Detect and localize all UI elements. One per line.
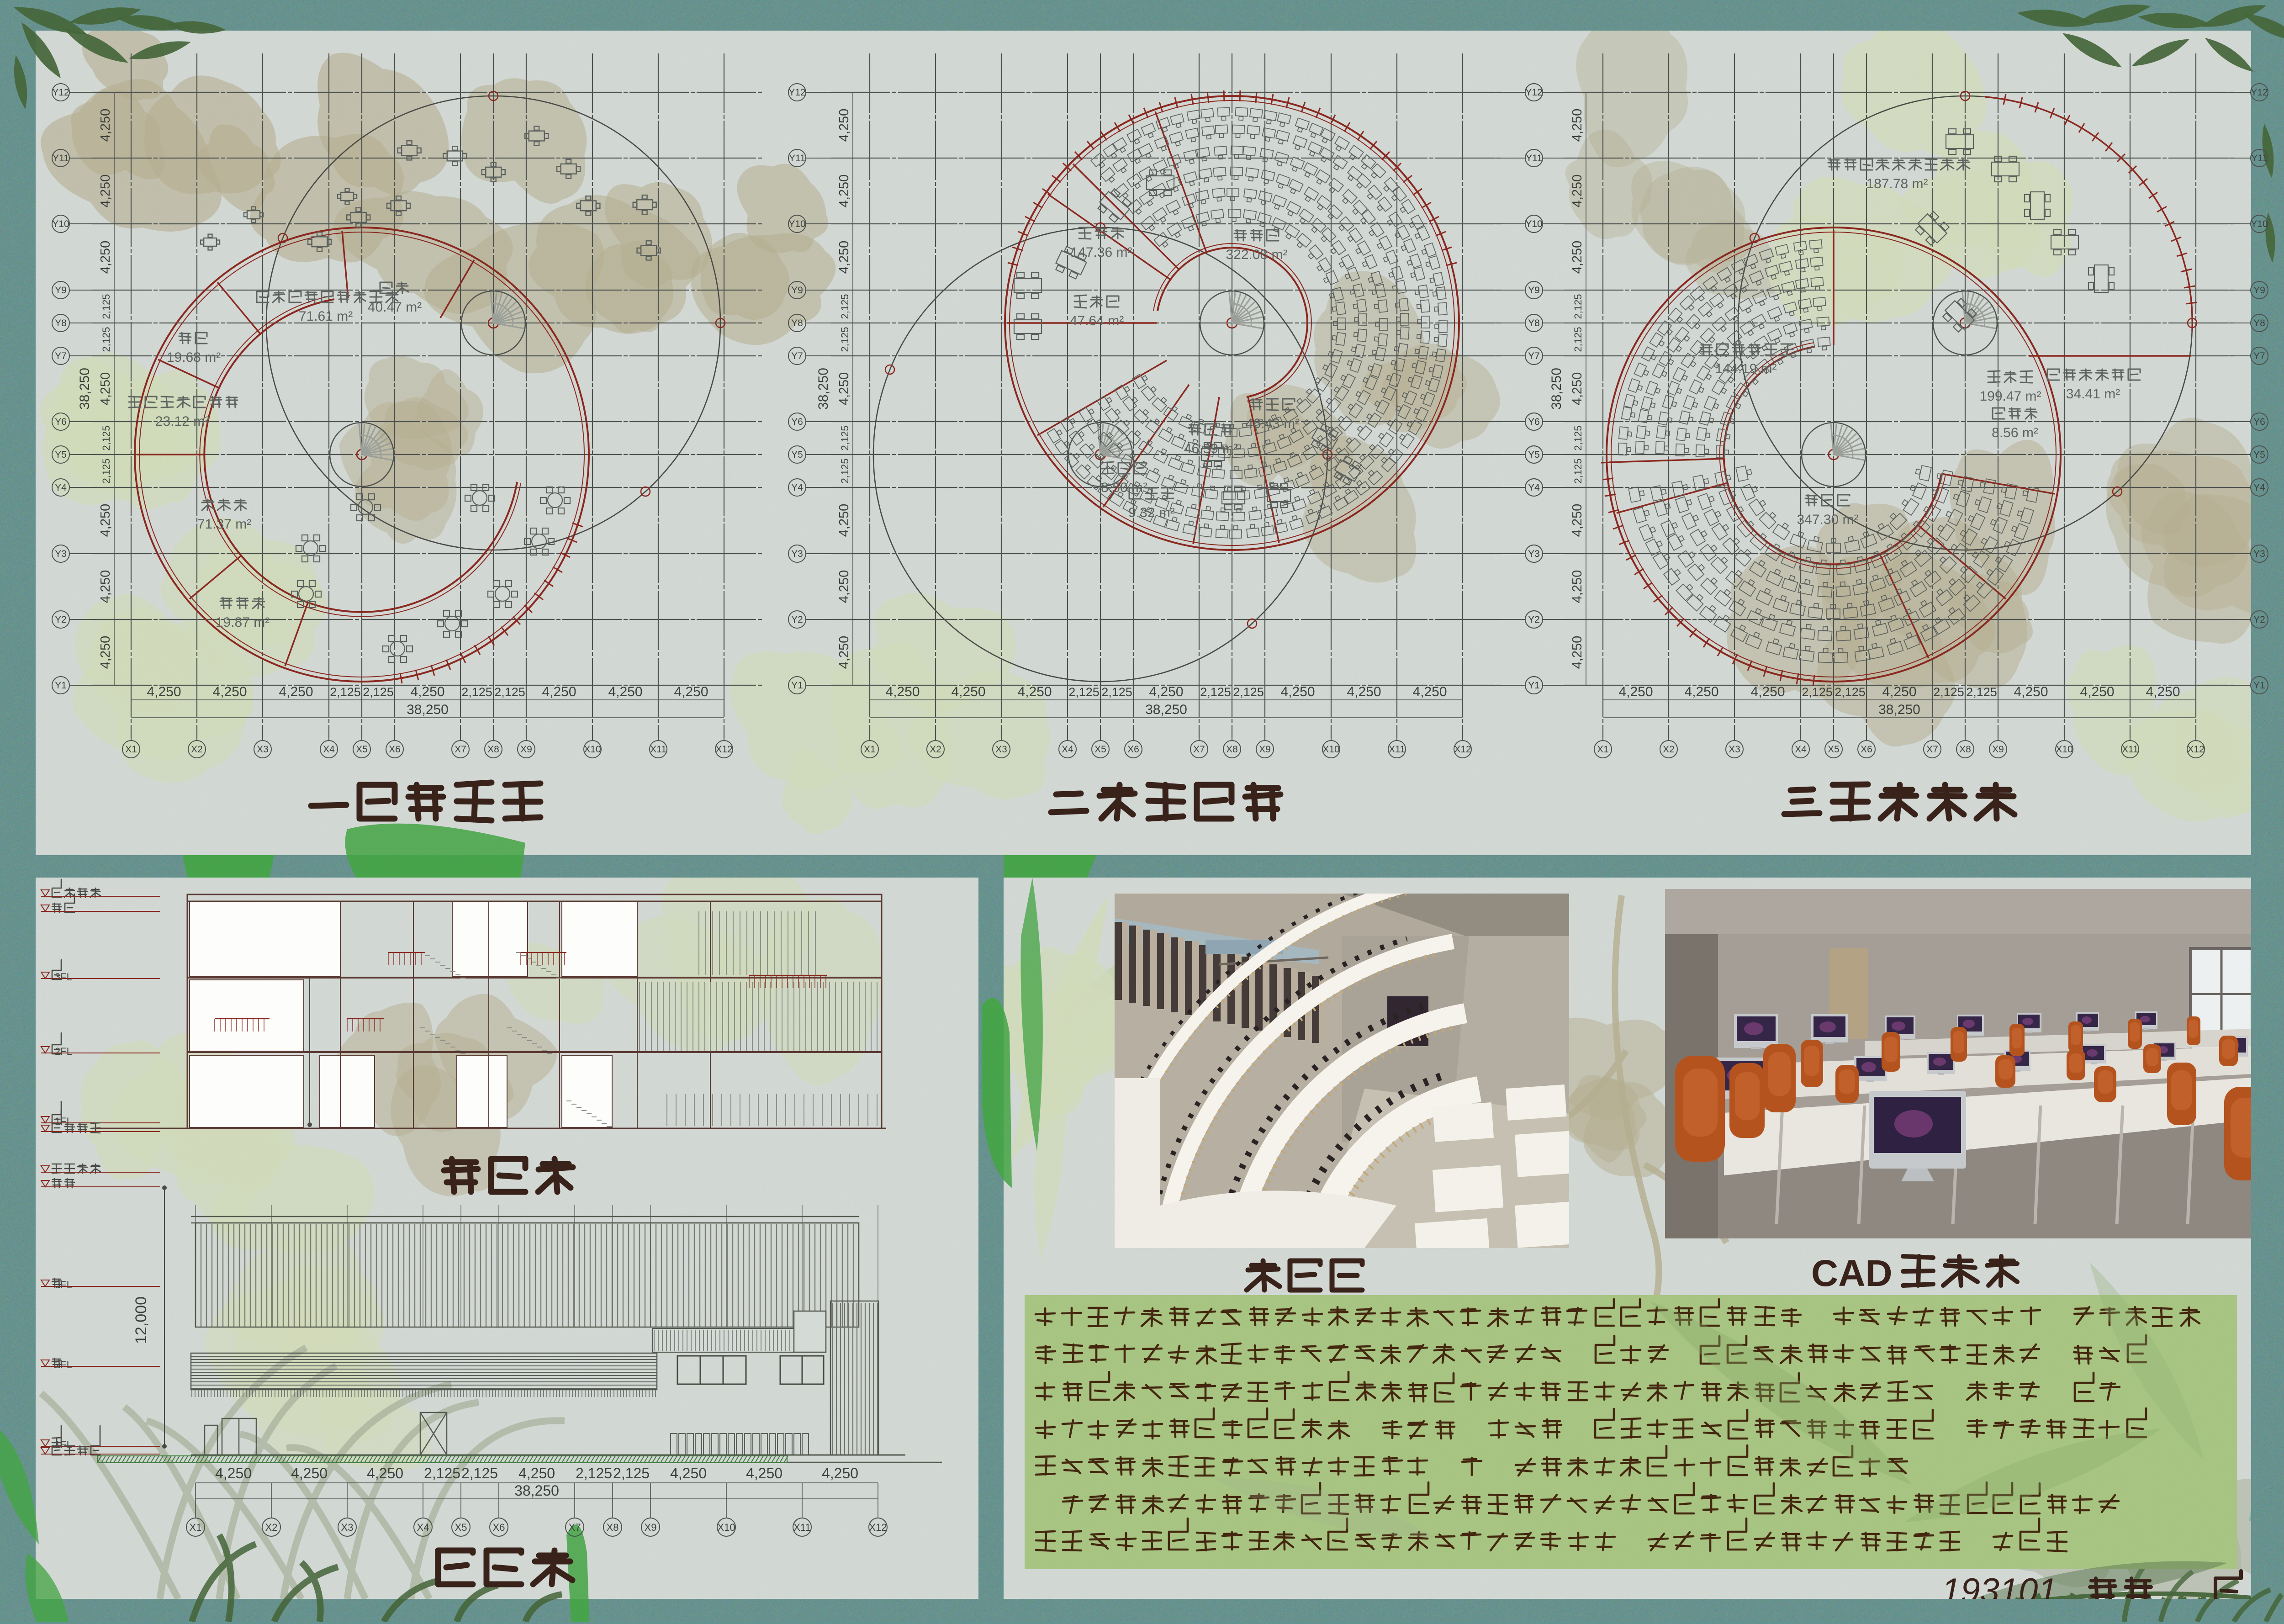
svg-text:Y12: Y12 xyxy=(2251,87,2268,98)
svg-text:2,125: 2,125 xyxy=(494,685,525,699)
svg-text:4,250: 4,250 xyxy=(837,175,851,208)
svg-text:X7: X7 xyxy=(1926,744,1938,755)
svg-text:X11: X11 xyxy=(1389,744,1405,755)
svg-text:9.32 m²: 9.32 m² xyxy=(1128,505,1175,520)
svg-text:X8: X8 xyxy=(487,744,499,755)
svg-text:X9: X9 xyxy=(520,744,532,755)
svg-text:2,125: 2,125 xyxy=(1572,327,1584,352)
svg-text:X1: X1 xyxy=(125,744,137,755)
svg-text:X3: X3 xyxy=(257,744,269,755)
svg-text:38,250: 38,250 xyxy=(1549,368,1564,410)
svg-text:X11: X11 xyxy=(650,744,666,755)
svg-text:Y11: Y11 xyxy=(789,153,805,164)
svg-text:38,250: 38,250 xyxy=(407,702,449,717)
svg-text:Y12: Y12 xyxy=(788,87,805,98)
svg-text:Y5: Y5 xyxy=(55,450,67,460)
svg-text:X6: X6 xyxy=(1861,744,1872,755)
svg-text:X10: X10 xyxy=(584,744,601,755)
svg-text:Y1: Y1 xyxy=(2253,680,2265,691)
svg-text:Y3: Y3 xyxy=(791,549,803,559)
svg-text:2,125: 2,125 xyxy=(1200,685,1231,699)
svg-text:4,250: 4,250 xyxy=(98,504,113,537)
svg-text:2,125: 2,125 xyxy=(576,1465,612,1481)
svg-text:2,125: 2,125 xyxy=(1233,685,1264,699)
svg-text:X8: X8 xyxy=(1226,744,1238,755)
svg-text:4,250: 4,250 xyxy=(98,570,113,603)
svg-text:4,250: 4,250 xyxy=(1882,684,1916,699)
svg-text:X2: X2 xyxy=(1663,744,1675,755)
svg-text:X5: X5 xyxy=(1094,744,1106,755)
svg-text:4,250: 4,250 xyxy=(951,684,985,699)
svg-text:Y8: Y8 xyxy=(55,318,67,328)
svg-text:Y2: Y2 xyxy=(1528,614,1540,625)
svg-text:X6: X6 xyxy=(1127,744,1139,755)
svg-text:X8: X8 xyxy=(1959,744,1971,755)
svg-text:X10: X10 xyxy=(717,1522,735,1533)
svg-text:Y1: Y1 xyxy=(791,680,803,691)
svg-text:Y4: Y4 xyxy=(1528,482,1540,493)
svg-text:2,125: 2,125 xyxy=(1802,685,1833,699)
svg-text:19.68 m²: 19.68 m² xyxy=(167,350,221,365)
svg-text:71.37 m²: 71.37 m² xyxy=(197,517,251,532)
svg-text:2,125: 2,125 xyxy=(461,1465,498,1481)
svg-text:187.78 m²: 187.78 m² xyxy=(1866,176,1928,191)
svg-text:4,250: 4,250 xyxy=(367,1465,403,1481)
svg-text:X1: X1 xyxy=(864,744,876,755)
svg-text:X6: X6 xyxy=(493,1522,505,1533)
svg-text:X4: X4 xyxy=(323,744,335,755)
svg-text:X5: X5 xyxy=(455,1522,467,1533)
svg-text:2,125: 2,125 xyxy=(1101,685,1132,699)
svg-text:2,125: 2,125 xyxy=(1572,458,1584,483)
svg-text:4,250: 4,250 xyxy=(837,504,851,537)
svg-text:4,250: 4,250 xyxy=(98,175,113,208)
svg-text:4,250: 4,250 xyxy=(147,684,181,699)
svg-text:X5: X5 xyxy=(1828,744,1840,755)
svg-text:4,250: 4,250 xyxy=(1618,684,1653,699)
svg-text:2,125: 2,125 xyxy=(1835,685,1866,699)
svg-text:4,250: 4,250 xyxy=(1570,109,1585,142)
svg-text:4,250: 4,250 xyxy=(1570,570,1585,603)
svg-text:2,125: 2,125 xyxy=(100,294,112,319)
svg-text:Y10: Y10 xyxy=(1525,219,1542,229)
svg-text:4,250: 4,250 xyxy=(837,636,851,669)
svg-text:Y8: Y8 xyxy=(2253,318,2265,328)
svg-text:4,250: 4,250 xyxy=(1570,175,1585,208)
svg-text:X11: X11 xyxy=(2122,744,2138,755)
svg-text:Y11: Y11 xyxy=(2251,153,2268,164)
svg-text:4,250: 4,250 xyxy=(674,684,708,699)
svg-text:2,125: 2,125 xyxy=(461,685,492,699)
svg-text:Y9: Y9 xyxy=(1528,285,1540,296)
svg-text:4,250: 4,250 xyxy=(518,1465,555,1481)
svg-text:Y6: Y6 xyxy=(2253,417,2265,427)
svg-text:4,250: 4,250 xyxy=(608,684,642,699)
svg-text:38,250: 38,250 xyxy=(1878,702,1920,717)
svg-text:CAD: CAD xyxy=(1811,1253,1893,1294)
svg-text:Y7: Y7 xyxy=(55,351,67,361)
svg-text:Y10: Y10 xyxy=(2251,219,2268,229)
svg-text:X4: X4 xyxy=(1795,744,1807,755)
svg-text:X2: X2 xyxy=(191,744,203,755)
svg-text:4,250: 4,250 xyxy=(670,1465,707,1481)
svg-text:3FL: 3FL xyxy=(55,971,72,983)
svg-text:8.56 m²: 8.56 m² xyxy=(1992,425,2038,440)
svg-text:X3: X3 xyxy=(995,744,1007,755)
svg-text:1FL: 1FL xyxy=(55,1116,72,1127)
svg-text:4,250: 4,250 xyxy=(98,109,113,142)
svg-text:3FL: 3FL xyxy=(55,1279,72,1291)
svg-text:4,250: 4,250 xyxy=(1570,504,1585,537)
svg-text:40.47 m²: 40.47 m² xyxy=(368,300,422,315)
svg-text:4,250: 4,250 xyxy=(279,684,313,699)
svg-text:2,125: 2,125 xyxy=(839,458,851,483)
svg-text:Y9: Y9 xyxy=(2253,285,2265,296)
svg-text:X6: X6 xyxy=(389,744,401,755)
svg-text:4,250: 4,250 xyxy=(1570,372,1585,406)
svg-text:Y10: Y10 xyxy=(788,219,805,229)
svg-text:Y1: Y1 xyxy=(55,680,67,691)
svg-text:2,125: 2,125 xyxy=(363,685,394,699)
svg-text:Y11: Y11 xyxy=(1526,153,1542,164)
svg-text:4,250: 4,250 xyxy=(1412,684,1447,699)
svg-text:4,250: 4,250 xyxy=(542,684,576,699)
svg-text:X2: X2 xyxy=(265,1522,278,1533)
svg-text:4,250: 4,250 xyxy=(1750,684,1785,699)
svg-text:X7: X7 xyxy=(455,744,466,755)
svg-text:X12: X12 xyxy=(715,744,732,755)
svg-text:X10: X10 xyxy=(1322,744,1339,755)
svg-text:Y1: Y1 xyxy=(1528,680,1540,691)
svg-text:Y5: Y5 xyxy=(1528,450,1540,460)
svg-text:2,125: 2,125 xyxy=(839,327,851,352)
svg-text:322.08 m²: 322.08 m² xyxy=(1226,247,1287,262)
svg-text:4,250: 4,250 xyxy=(885,684,920,699)
svg-text:X1: X1 xyxy=(1597,744,1609,755)
svg-text:4,250: 4,250 xyxy=(837,570,851,603)
svg-text:X3: X3 xyxy=(341,1522,354,1533)
svg-text:X11: X11 xyxy=(793,1522,811,1533)
svg-text:347.30 m²: 347.30 m² xyxy=(1797,512,1858,527)
svg-text:2,125: 2,125 xyxy=(1966,685,1997,699)
svg-text:Y11: Y11 xyxy=(53,153,69,164)
svg-text:Y4: Y4 xyxy=(55,482,67,493)
svg-text:38,250: 38,250 xyxy=(514,1482,559,1499)
svg-text:71.61 m²: 71.61 m² xyxy=(299,309,353,324)
svg-text:Y10: Y10 xyxy=(52,219,69,229)
svg-text:X4: X4 xyxy=(417,1522,429,1533)
svg-text:4,250: 4,250 xyxy=(212,684,247,699)
svg-text:2FL: 2FL xyxy=(55,1359,72,1370)
svg-text:2,125: 2,125 xyxy=(1572,425,1584,450)
svg-text:X2: X2 xyxy=(930,744,941,755)
svg-text:X9: X9 xyxy=(1259,744,1271,755)
svg-text:2FL: 2FL xyxy=(55,1046,72,1057)
svg-text:Y5: Y5 xyxy=(791,450,803,460)
svg-text:4,250: 4,250 xyxy=(1570,636,1585,669)
svg-text:Y12: Y12 xyxy=(52,87,69,98)
svg-text:Y6: Y6 xyxy=(791,417,803,427)
svg-text:X9: X9 xyxy=(645,1522,657,1533)
svg-text:X10: X10 xyxy=(2056,744,2073,755)
svg-text:X12: X12 xyxy=(1454,744,1471,755)
svg-text:X4: X4 xyxy=(1062,744,1073,755)
svg-text:2,125: 2,125 xyxy=(839,294,851,319)
svg-text:Y6: Y6 xyxy=(1528,417,1540,427)
svg-text:Y7: Y7 xyxy=(791,351,803,361)
svg-text:X9: X9 xyxy=(1992,744,2004,755)
svg-text:X8: X8 xyxy=(607,1522,619,1533)
svg-text:Y8: Y8 xyxy=(1528,318,1540,328)
svg-text:X7: X7 xyxy=(1193,744,1205,755)
svg-text:4,250: 4,250 xyxy=(1280,684,1315,699)
svg-text:Y9: Y9 xyxy=(791,285,803,296)
svg-text:23.12 m²: 23.12 m² xyxy=(155,414,209,429)
svg-text:X12: X12 xyxy=(869,1522,887,1533)
svg-text:4,250: 4,250 xyxy=(837,241,851,274)
svg-text:1FL: 1FL xyxy=(55,1439,72,1450)
svg-text:Y6: Y6 xyxy=(55,417,67,427)
svg-text:2,125: 2,125 xyxy=(1933,685,1964,699)
svg-text:4,250: 4,250 xyxy=(837,109,851,142)
svg-text:X3: X3 xyxy=(1729,744,1740,755)
svg-text:38,250: 38,250 xyxy=(77,368,92,410)
svg-text:4,250: 4,250 xyxy=(291,1465,328,1481)
svg-text:38,250: 38,250 xyxy=(1145,702,1187,717)
svg-text:Y3: Y3 xyxy=(2253,549,2265,559)
svg-text:2,125: 2,125 xyxy=(1068,685,1100,699)
svg-text:Y3: Y3 xyxy=(1528,549,1540,559)
svg-text:4,250: 4,250 xyxy=(746,1465,782,1481)
svg-text:4,250: 4,250 xyxy=(1347,684,1381,699)
svg-text:47.64 m²: 47.64 m² xyxy=(1070,313,1124,328)
svg-text:Y2: Y2 xyxy=(55,614,67,625)
svg-text:Y2: Y2 xyxy=(2253,614,2265,625)
svg-text:2,125: 2,125 xyxy=(100,425,112,450)
svg-text:Y7: Y7 xyxy=(2253,351,2265,361)
svg-text:4,250: 4,250 xyxy=(215,1465,252,1481)
svg-text:4,250: 4,250 xyxy=(837,372,851,406)
svg-text:Y8: Y8 xyxy=(791,318,803,328)
svg-text:4,250: 4,250 xyxy=(1684,684,1718,699)
svg-text:Y3: Y3 xyxy=(55,549,67,559)
svg-text:4,250: 4,250 xyxy=(1017,684,1052,699)
svg-text:Y4: Y4 xyxy=(2253,482,2265,493)
svg-text:Y9: Y9 xyxy=(55,285,67,296)
svg-text:Y7: Y7 xyxy=(1528,351,1540,361)
svg-text:34.41 m²: 34.41 m² xyxy=(2066,386,2120,402)
svg-text:Y5: Y5 xyxy=(2253,450,2265,460)
svg-text:12,000: 12,000 xyxy=(132,1296,150,1344)
svg-text:4,250: 4,250 xyxy=(98,636,113,669)
svg-text:Y12: Y12 xyxy=(1525,87,1542,98)
svg-text:38,250: 38,250 xyxy=(816,368,831,410)
svg-text:4,250: 4,250 xyxy=(98,241,113,274)
svg-text:4,250: 4,250 xyxy=(2014,684,2048,699)
svg-text:2,125: 2,125 xyxy=(330,685,361,699)
svg-text:4,250: 4,250 xyxy=(98,372,113,406)
svg-text:2,125: 2,125 xyxy=(100,458,112,483)
svg-text:X12: X12 xyxy=(2187,744,2204,755)
svg-text:X1: X1 xyxy=(190,1522,202,1533)
svg-text:4,250: 4,250 xyxy=(410,684,444,699)
svg-text:4,250: 4,250 xyxy=(2080,684,2114,699)
svg-text:2,125: 2,125 xyxy=(1572,294,1584,319)
svg-text:4,250: 4,250 xyxy=(2146,684,2180,699)
svg-text:Y2: Y2 xyxy=(791,614,803,625)
svg-text:4,250: 4,250 xyxy=(1149,684,1183,699)
svg-text:Y4: Y4 xyxy=(791,482,803,493)
svg-text:4,250: 4,250 xyxy=(1570,241,1585,274)
svg-text:X5: X5 xyxy=(356,744,368,755)
svg-text:2,125: 2,125 xyxy=(839,425,851,450)
svg-text:199.47 m²: 199.47 m² xyxy=(1979,389,2041,404)
svg-text:2,125: 2,125 xyxy=(100,327,112,352)
svg-text:2,125: 2,125 xyxy=(613,1465,650,1481)
svg-text:2,125: 2,125 xyxy=(424,1465,460,1481)
svg-text:X7: X7 xyxy=(569,1522,581,1533)
svg-text:4,250: 4,250 xyxy=(822,1465,858,1481)
svg-text:19.87 m²: 19.87 m² xyxy=(216,615,270,630)
